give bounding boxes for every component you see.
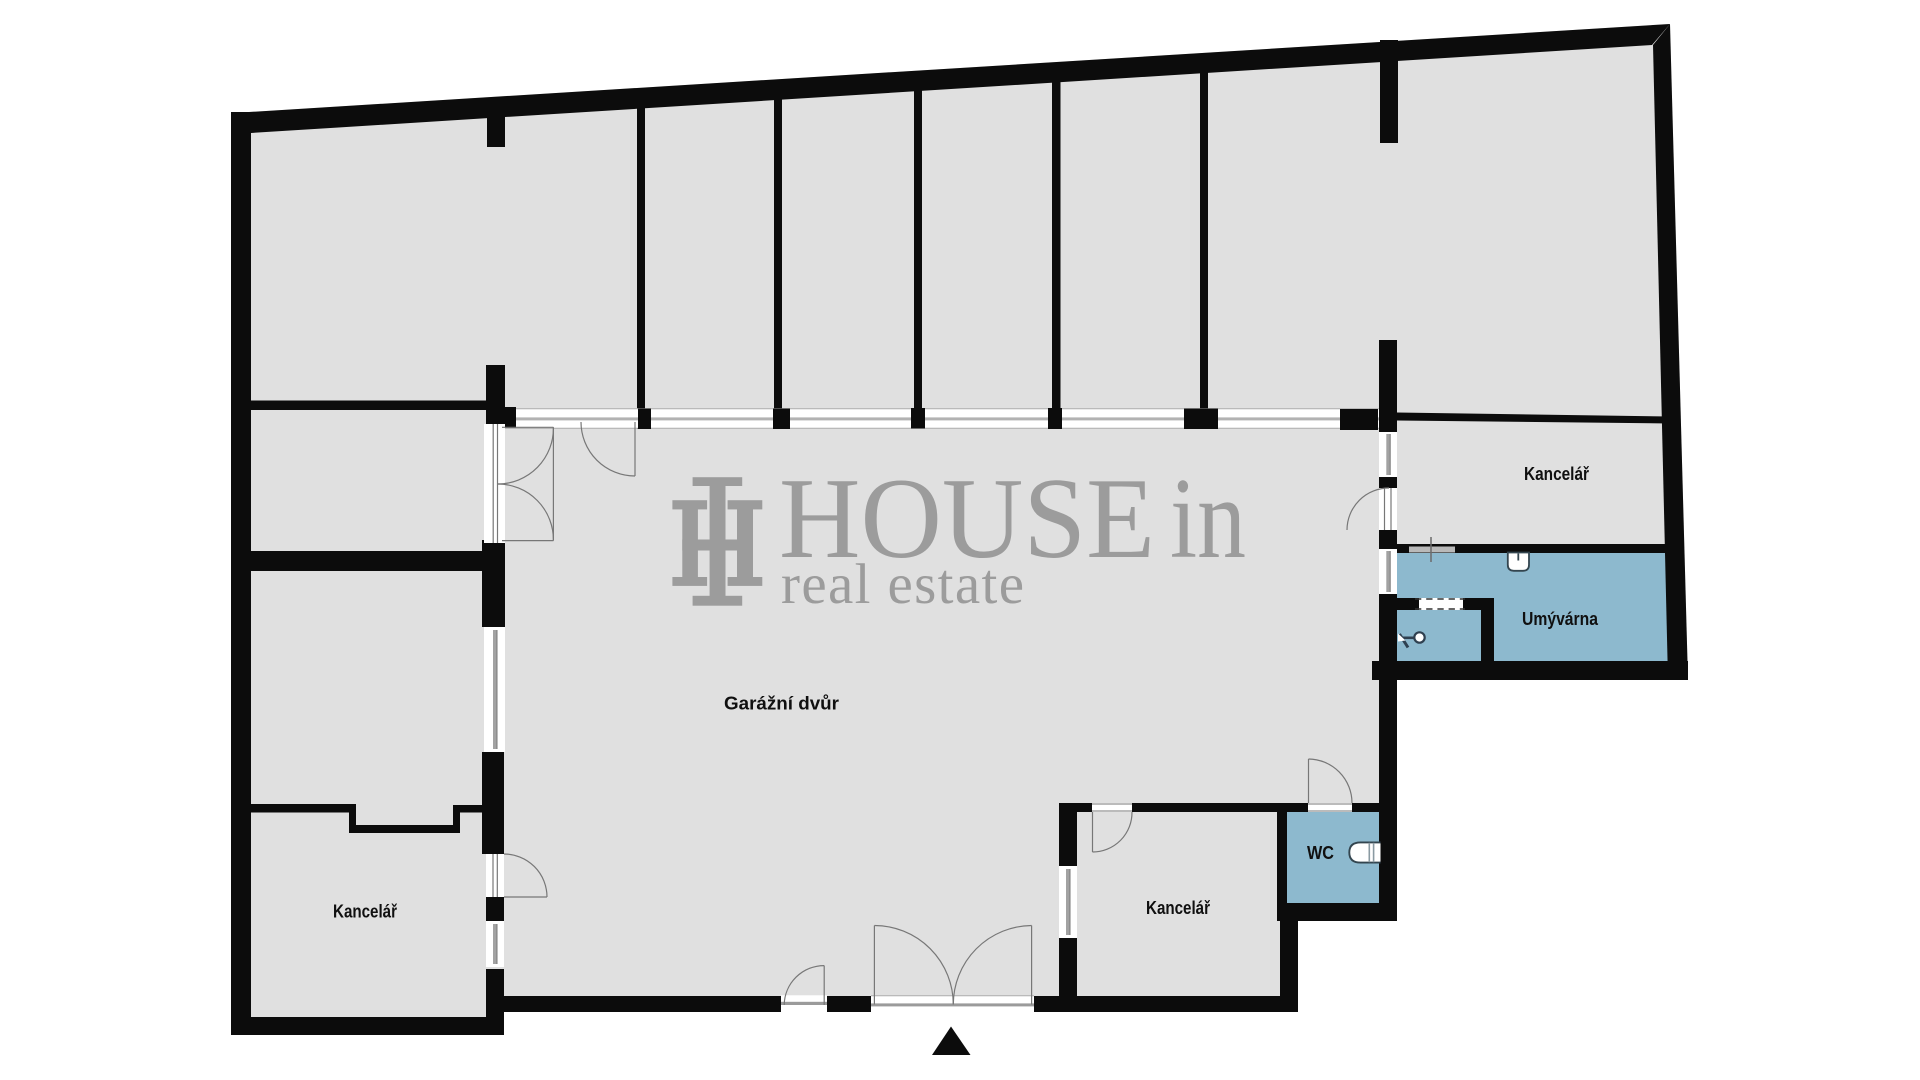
svg-text:in: in	[1170, 455, 1246, 583]
svg-text:Umývárna: Umývárna	[1522, 609, 1599, 629]
svg-text:WC: WC	[1307, 843, 1334, 863]
svg-text:Garážní dvůr: Garážní dvůr	[724, 694, 839, 714]
svg-text:Kancelář: Kancelář	[333, 902, 397, 922]
svg-text:Kancelář: Kancelář	[1524, 464, 1589, 484]
svg-text:real estate: real estate	[781, 553, 1024, 616]
svg-text:Kancelář: Kancelář	[1146, 898, 1210, 918]
